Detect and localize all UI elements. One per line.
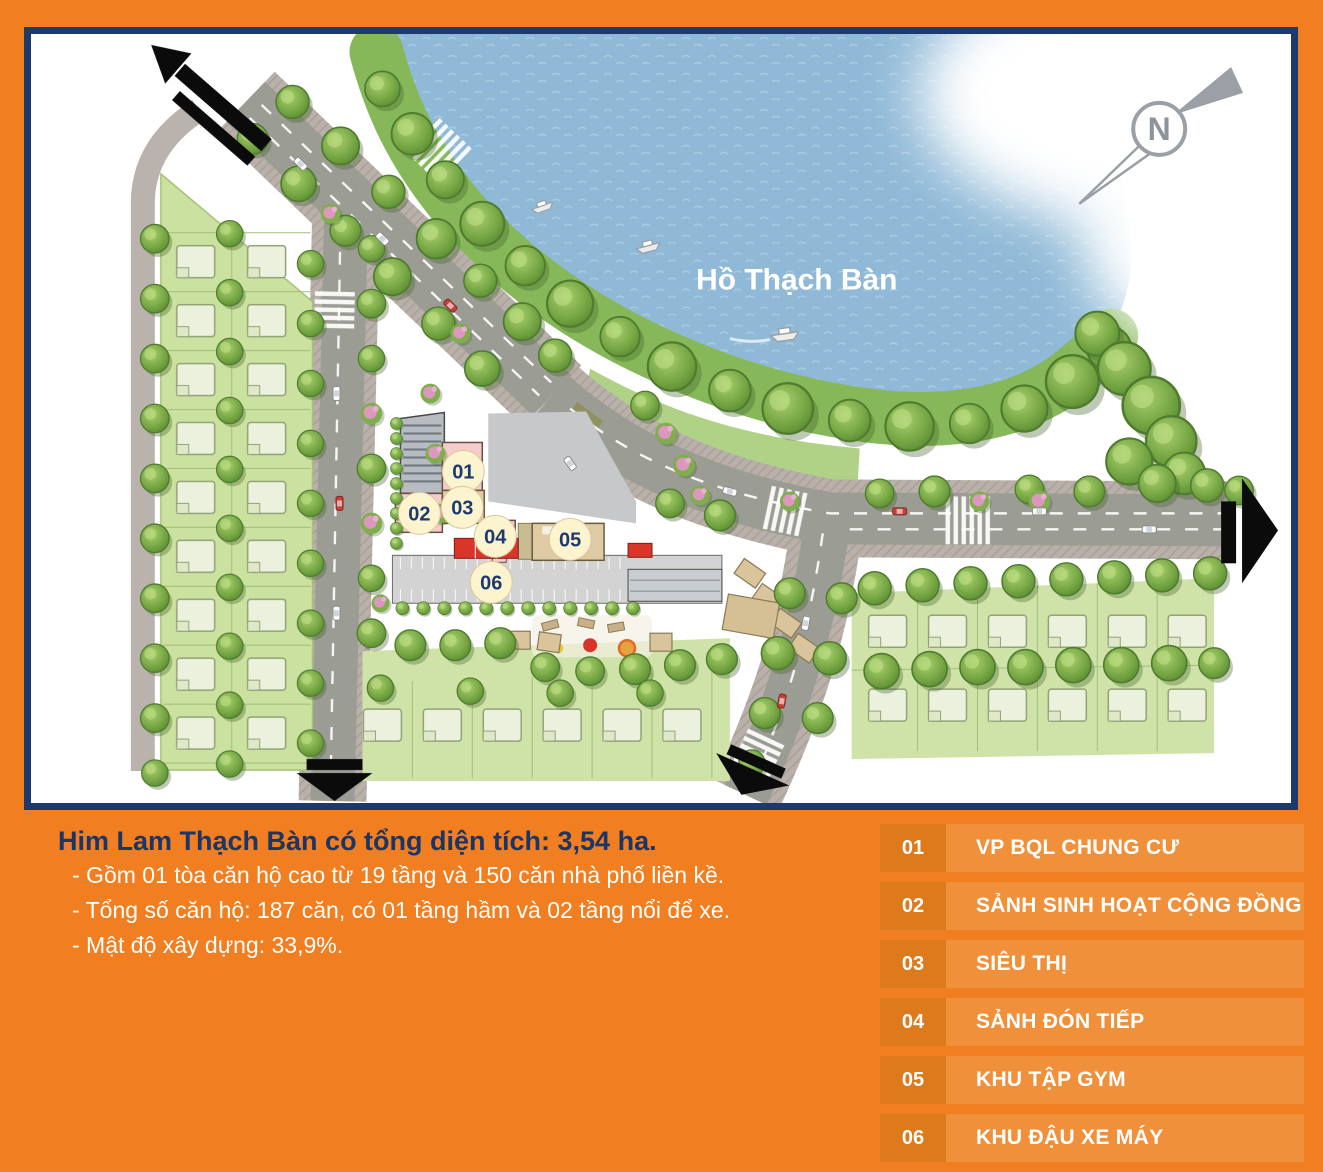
legend-row-06: 06 KHU ĐẬU XE MÁY [880,1114,1304,1162]
lake-label: Hồ Thạch Bàn [696,264,897,297]
svg-text:06: 06 [480,572,502,594]
building-marker-02: 02 [398,492,440,534]
site-plan-map: 01 02 03 04 05 06 Hồ Thạch Bàn N [24,27,1298,810]
legend-row-05: 05 KHU TẬP GYM [880,1056,1304,1104]
svg-text:03: 03 [451,497,473,519]
legend-label: VP BQL CHUNG CƯ [946,824,1304,872]
building-marker-05: 05 [549,518,591,560]
legend-num: 02 [880,882,946,930]
building-marker-06: 06 [470,561,512,603]
svg-text:02: 02 [408,503,430,525]
project-info-line: - Gồm 01 tòa căn hộ cao từ 19 tầng và 15… [58,858,838,893]
building-marker-04: 04 [474,515,516,557]
project-info-panel: Him Lam Thạch Bàn có tổng diện tích: 3,5… [58,824,838,963]
project-info-line: - Mật độ xây dựng: 33,9%. [58,928,838,963]
legend-label: SIÊU THỊ [946,940,1304,988]
svg-text:04: 04 [484,526,506,548]
svg-text:05: 05 [559,529,581,551]
site-plan-svg: 01 02 03 04 05 06 Hồ Thạch Bàn N [31,34,1291,803]
legend-num: 03 [880,940,946,988]
svg-text:01: 01 [452,461,474,483]
legend-row-03: 03 SIÊU THỊ [880,940,1304,988]
legend-label: SẢNH ĐÓN TIẾP [946,998,1304,1046]
project-info-line: - Tổng số căn hộ: 187 căn, có 01 tầng hầ… [58,893,838,928]
compass-n-label: N [1148,111,1171,147]
legend-label: KHU ĐẬU XE MÁY [946,1114,1304,1162]
legend-row-01: 01 VP BQL CHUNG CƯ [880,824,1304,872]
legend-row-02: 02 SẢNH SINH HOẠT CỘNG ĐỒNG [880,882,1304,930]
legend-num: 06 [880,1114,946,1162]
legend-num: 05 [880,1056,946,1104]
legend: 01 VP BQL CHUNG CƯ 02 SẢNH SINH HOẠT CỘN… [880,824,1304,1172]
legend-num: 04 [880,998,946,1046]
legend-label: KHU TẬP GYM [946,1056,1304,1104]
legend-num: 01 [880,824,946,872]
legend-label: SẢNH SINH HOẠT CỘNG ĐỒNG [946,882,1304,930]
parking-canopy [628,569,722,601]
project-title: Him Lam Thạch Bàn có tổng diện tích: 3,5… [58,824,838,858]
legend-row-04: 04 SẢNH ĐÓN TIẾP [880,998,1304,1046]
building-marker-03: 03 [441,486,483,528]
